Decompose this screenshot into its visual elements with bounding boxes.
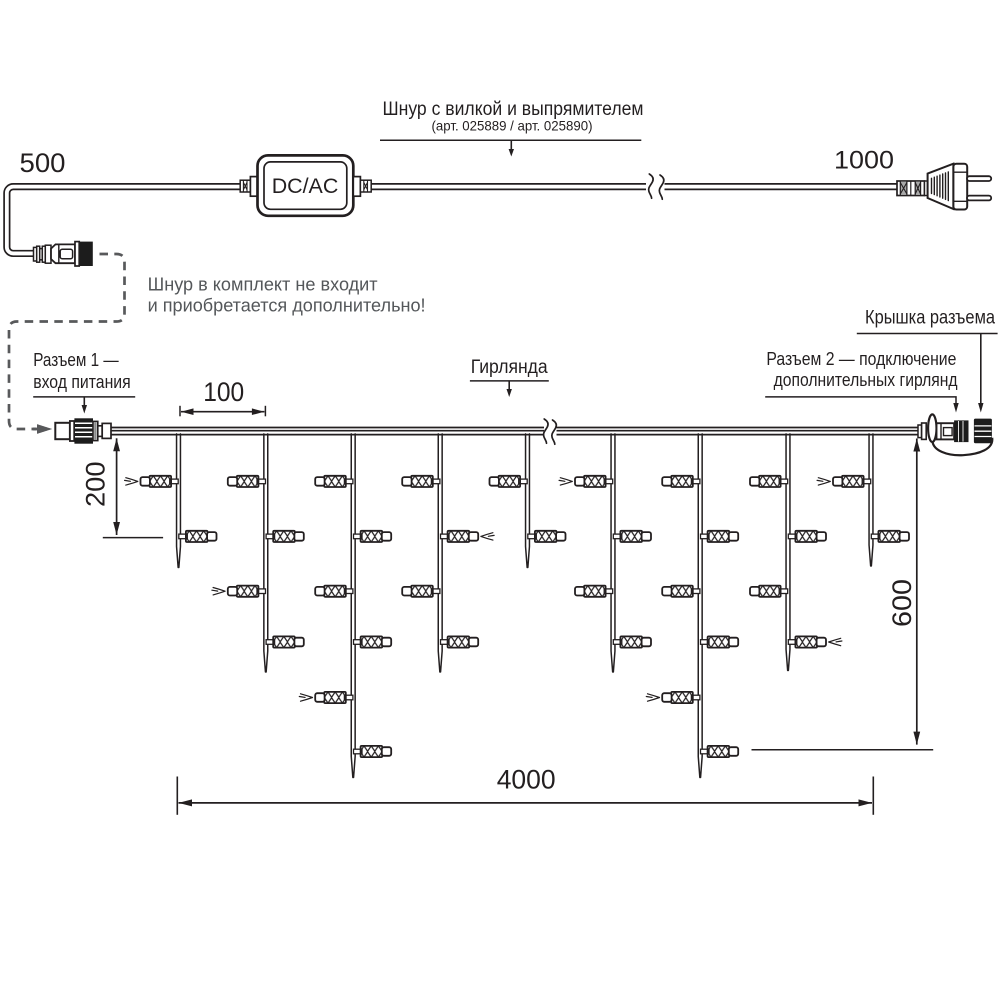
svg-text:Шнур в комплект не входит: Шнур в комплект не входит	[148, 274, 379, 295]
svg-text:Разъем 2 — подключение: Разъем 2 — подключение	[766, 349, 956, 369]
svg-text:500: 500	[20, 148, 66, 178]
svg-text:200: 200	[81, 462, 111, 508]
svg-text:1000: 1000	[834, 147, 894, 175]
svg-text:(арт. 025889 / арт. 025890): (арт. 025889 / арт. 025890)	[432, 118, 593, 134]
svg-text:4000: 4000	[497, 765, 556, 795]
svg-text:Крышка разъема: Крышка разъема	[865, 308, 995, 329]
svg-text:и приобретается дополнительно!: и приобретается дополнительно!	[148, 295, 426, 316]
svg-text:Гирлянда: Гирлянда	[471, 357, 548, 378]
svg-text:дополнительных гирлянд: дополнительных гирлянд	[774, 370, 958, 390]
svg-text:Разъем 1 —: Разъем 1 —	[33, 350, 119, 370]
svg-text:вход питания: вход питания	[33, 372, 131, 392]
svg-text:DC/AC: DC/AC	[272, 174, 339, 198]
svg-text:600: 600	[887, 579, 917, 627]
svg-text:100: 100	[203, 377, 244, 407]
